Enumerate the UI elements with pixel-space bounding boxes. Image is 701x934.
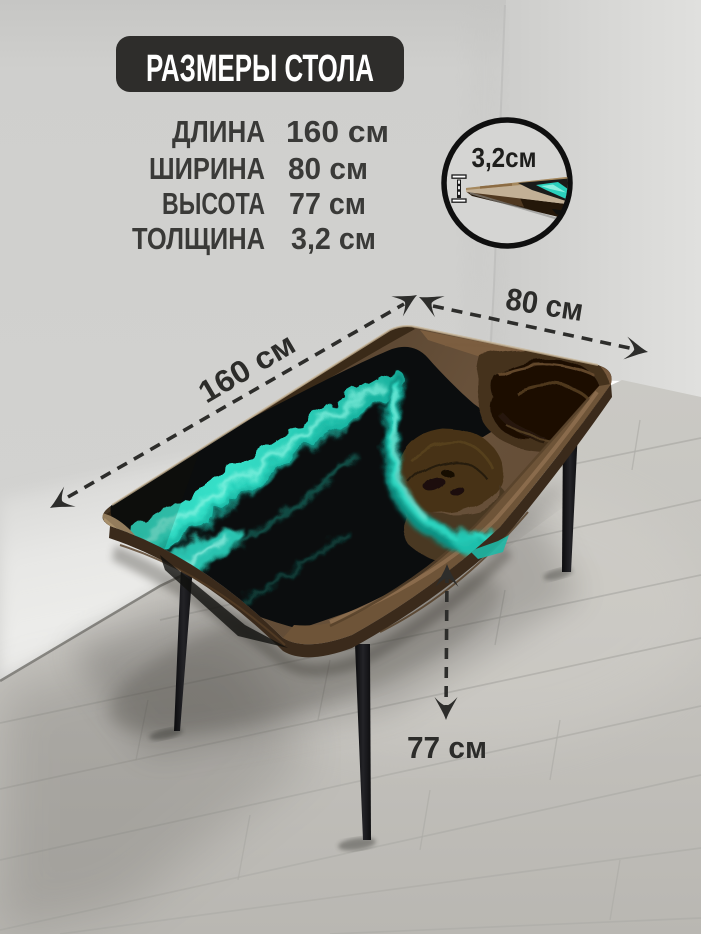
svg-text:РАЗМЕРЫ СТОЛА: РАЗМЕРЫ СТОЛА bbox=[146, 48, 374, 90]
svg-text:ВЫСОТА: ВЫСОТА bbox=[162, 186, 265, 221]
svg-text:3,2 см: 3,2 см bbox=[291, 221, 376, 256]
svg-text:77 см: 77 см bbox=[407, 730, 487, 765]
svg-text:3,2см: 3,2см bbox=[472, 142, 537, 173]
svg-text:ШИРИНА: ШИРИНА bbox=[149, 151, 265, 186]
svg-text:ДЛИНА: ДЛИНА bbox=[172, 114, 265, 149]
svg-text:160 см: 160 см bbox=[286, 114, 389, 149]
svg-text:80 см: 80 см bbox=[288, 151, 368, 186]
svg-text:ТОЛЩИНА: ТОЛЩИНА bbox=[132, 221, 265, 256]
svg-text:77 см: 77 см bbox=[289, 186, 366, 221]
